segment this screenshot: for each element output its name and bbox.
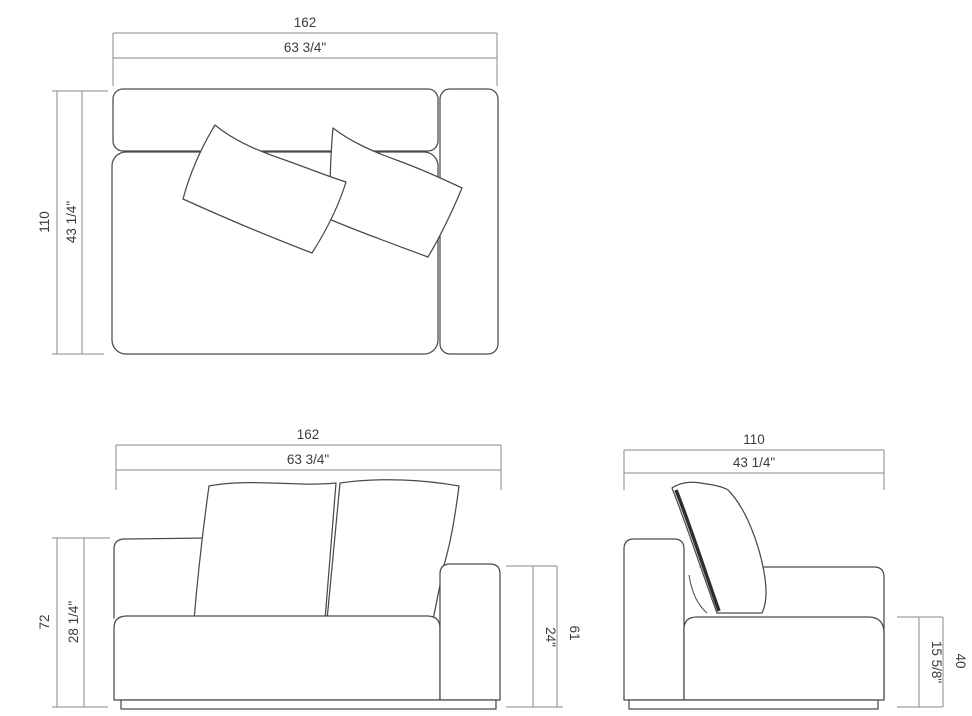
front-view-right-armrest bbox=[440, 564, 500, 700]
top-view-width-dimension: 162 63 3/4" bbox=[113, 15, 497, 86]
technical-drawing-canvas: 162 63 3/4" 110 43 1/4" 162 63 3/4" 72 bbox=[0, 0, 972, 716]
front-view-back-cushion-right bbox=[327, 480, 459, 620]
side-view-plinth bbox=[629, 700, 878, 709]
side-view: 110 43 1/4" 15 5/8" 40 bbox=[624, 432, 968, 709]
front-view-width-cm-label: 162 bbox=[297, 427, 320, 442]
front-view-arm-height-dimension: 24" 61 bbox=[506, 566, 582, 707]
front-view-sofa-outline bbox=[114, 480, 500, 709]
side-view-seat-height-dimension: 15 5/8" 40 bbox=[897, 617, 968, 707]
front-view-arm-height-in-label: 24" bbox=[543, 627, 558, 647]
front-view-plinth bbox=[121, 700, 496, 709]
top-view-width-in-label: 63 3/4" bbox=[284, 40, 327, 55]
front-view-height-dimension: 72 28 1/4" bbox=[37, 538, 110, 707]
side-view-seat-base bbox=[684, 617, 884, 700]
side-view-depth-dimension: 110 43 1/4" bbox=[624, 432, 884, 490]
side-view-sofa-outline bbox=[624, 482, 884, 709]
front-view-width-dimension: 162 63 3/4" bbox=[116, 427, 501, 490]
side-view-seat-height-in-label: 15 5/8" bbox=[929, 641, 944, 684]
top-view-width-cm-label: 162 bbox=[294, 15, 317, 30]
top-view-depth-dimension: 110 43 1/4" bbox=[37, 91, 108, 354]
front-view-seat-base bbox=[114, 616, 440, 700]
top-view-sofa-outline bbox=[112, 89, 498, 354]
front-view-height-in-label: 28 1/4" bbox=[66, 601, 81, 644]
top-view-depth-in-label: 43 1/4" bbox=[64, 201, 79, 244]
side-view-left-armrest bbox=[624, 539, 684, 700]
side-view-cushion-fold bbox=[689, 575, 707, 613]
top-view-backrest bbox=[113, 89, 438, 151]
side-view-depth-cm-label: 110 bbox=[743, 432, 765, 447]
front-view-back-cushion-left bbox=[194, 483, 336, 620]
top-view-right-armrest bbox=[440, 89, 498, 354]
top-view-depth-cm-label: 110 bbox=[37, 211, 52, 233]
side-view-seat-height-cm-label: 40 bbox=[953, 653, 968, 668]
side-view-back-cushion bbox=[672, 482, 766, 613]
front-view-arm-height-cm-label: 61 bbox=[567, 625, 582, 640]
front-view: 162 63 3/4" 72 28 1/4" 24" 61 bbox=[37, 427, 582, 709]
front-view-width-in-label: 63 3/4" bbox=[287, 452, 330, 467]
top-view: 162 63 3/4" 110 43 1/4" bbox=[37, 15, 498, 354]
sofa-dimension-drawing: 162 63 3/4" 110 43 1/4" 162 63 3/4" 72 bbox=[0, 0, 972, 716]
side-view-depth-in-label: 43 1/4" bbox=[733, 455, 776, 470]
front-view-height-cm-label: 72 bbox=[37, 614, 52, 629]
